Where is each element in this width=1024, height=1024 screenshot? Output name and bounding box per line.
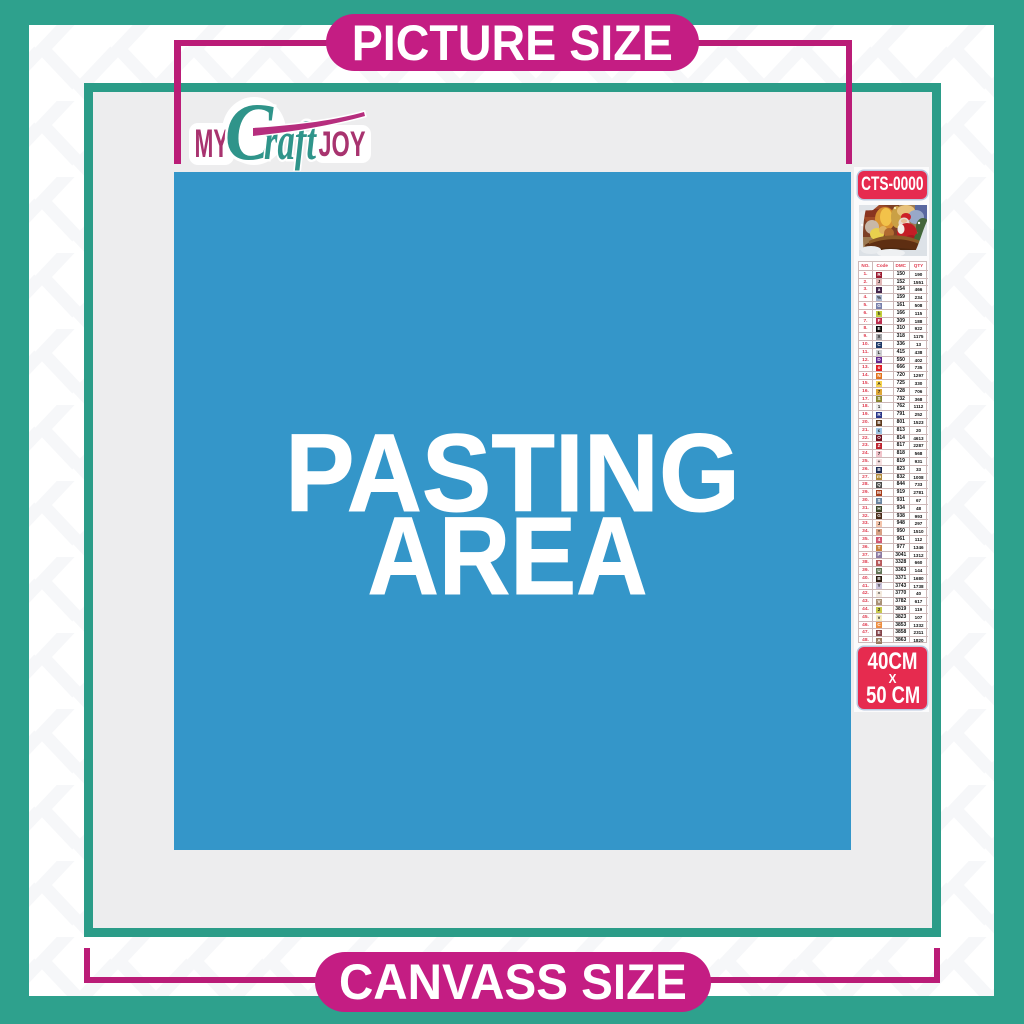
svg-text:JOY: JOY (319, 125, 366, 164)
svg-text:raft: raft (264, 111, 317, 171)
svg-text:MY: MY (195, 122, 229, 166)
